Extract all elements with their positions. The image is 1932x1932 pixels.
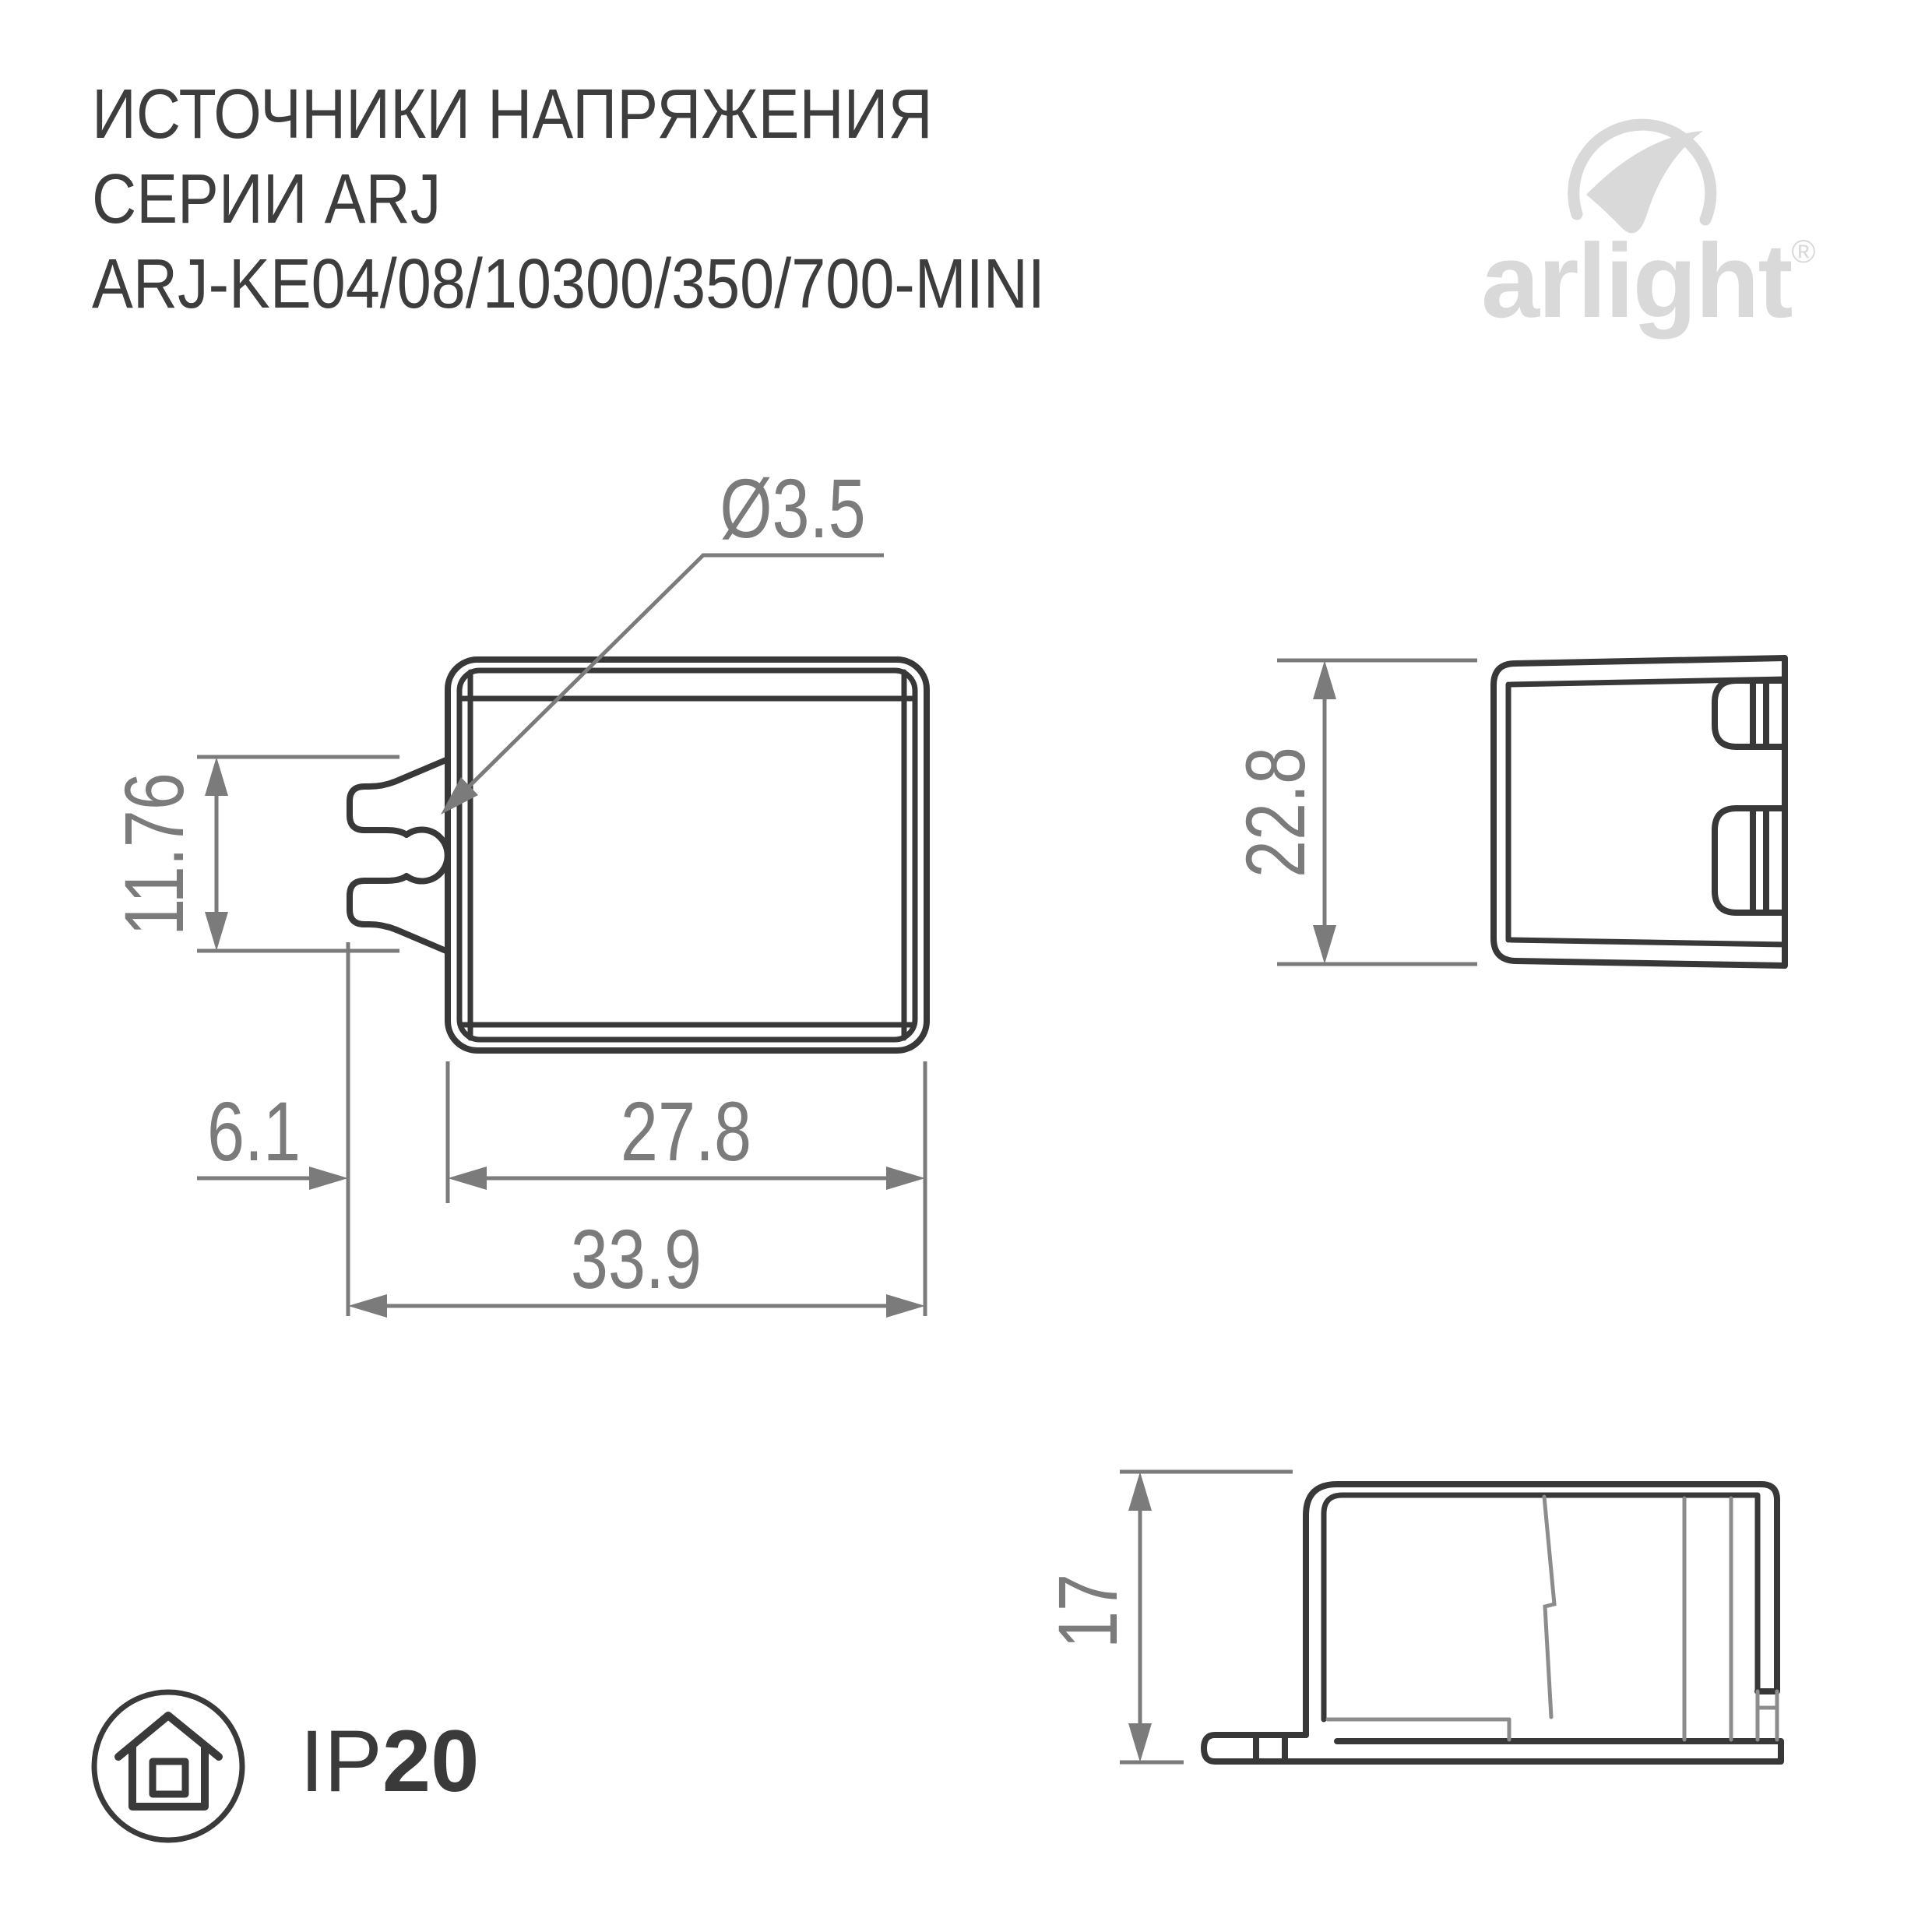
front-view: [350, 660, 927, 1050]
page: ИСТОЧНИКИ НАПРЯЖЕНИЯ СЕРИИ ARJ ARJ-KE04/…: [0, 0, 1932, 1932]
dim-body-width-label: 27.8: [621, 1084, 751, 1178]
technical-drawing: Ø3.5 11.76 6.1 27.8 33.9 22.8 17: [0, 0, 1932, 1932]
ip-value: 20: [382, 1712, 480, 1810]
dim-tab-height-label: 11.76: [107, 772, 201, 936]
dim-total-width-label: 33.9: [571, 1212, 702, 1306]
dim-depth-label: 17: [1040, 1574, 1135, 1649]
house-indoor-icon: [94, 1692, 242, 1840]
dim-hole-label: Ø3.5: [720, 461, 865, 555]
dim-height-label: 22.8: [1228, 747, 1322, 878]
profile-view-dimensions: [1120, 1472, 1293, 1762]
side-view: [1494, 658, 1785, 966]
profile-view-hidden-edges: [1328, 1497, 1777, 1740]
ip-prefix: IP: [300, 1712, 382, 1810]
dim-tab-offset-label: 6.1: [207, 1084, 301, 1178]
ip-rating-badge: IP20: [300, 1718, 479, 1805]
